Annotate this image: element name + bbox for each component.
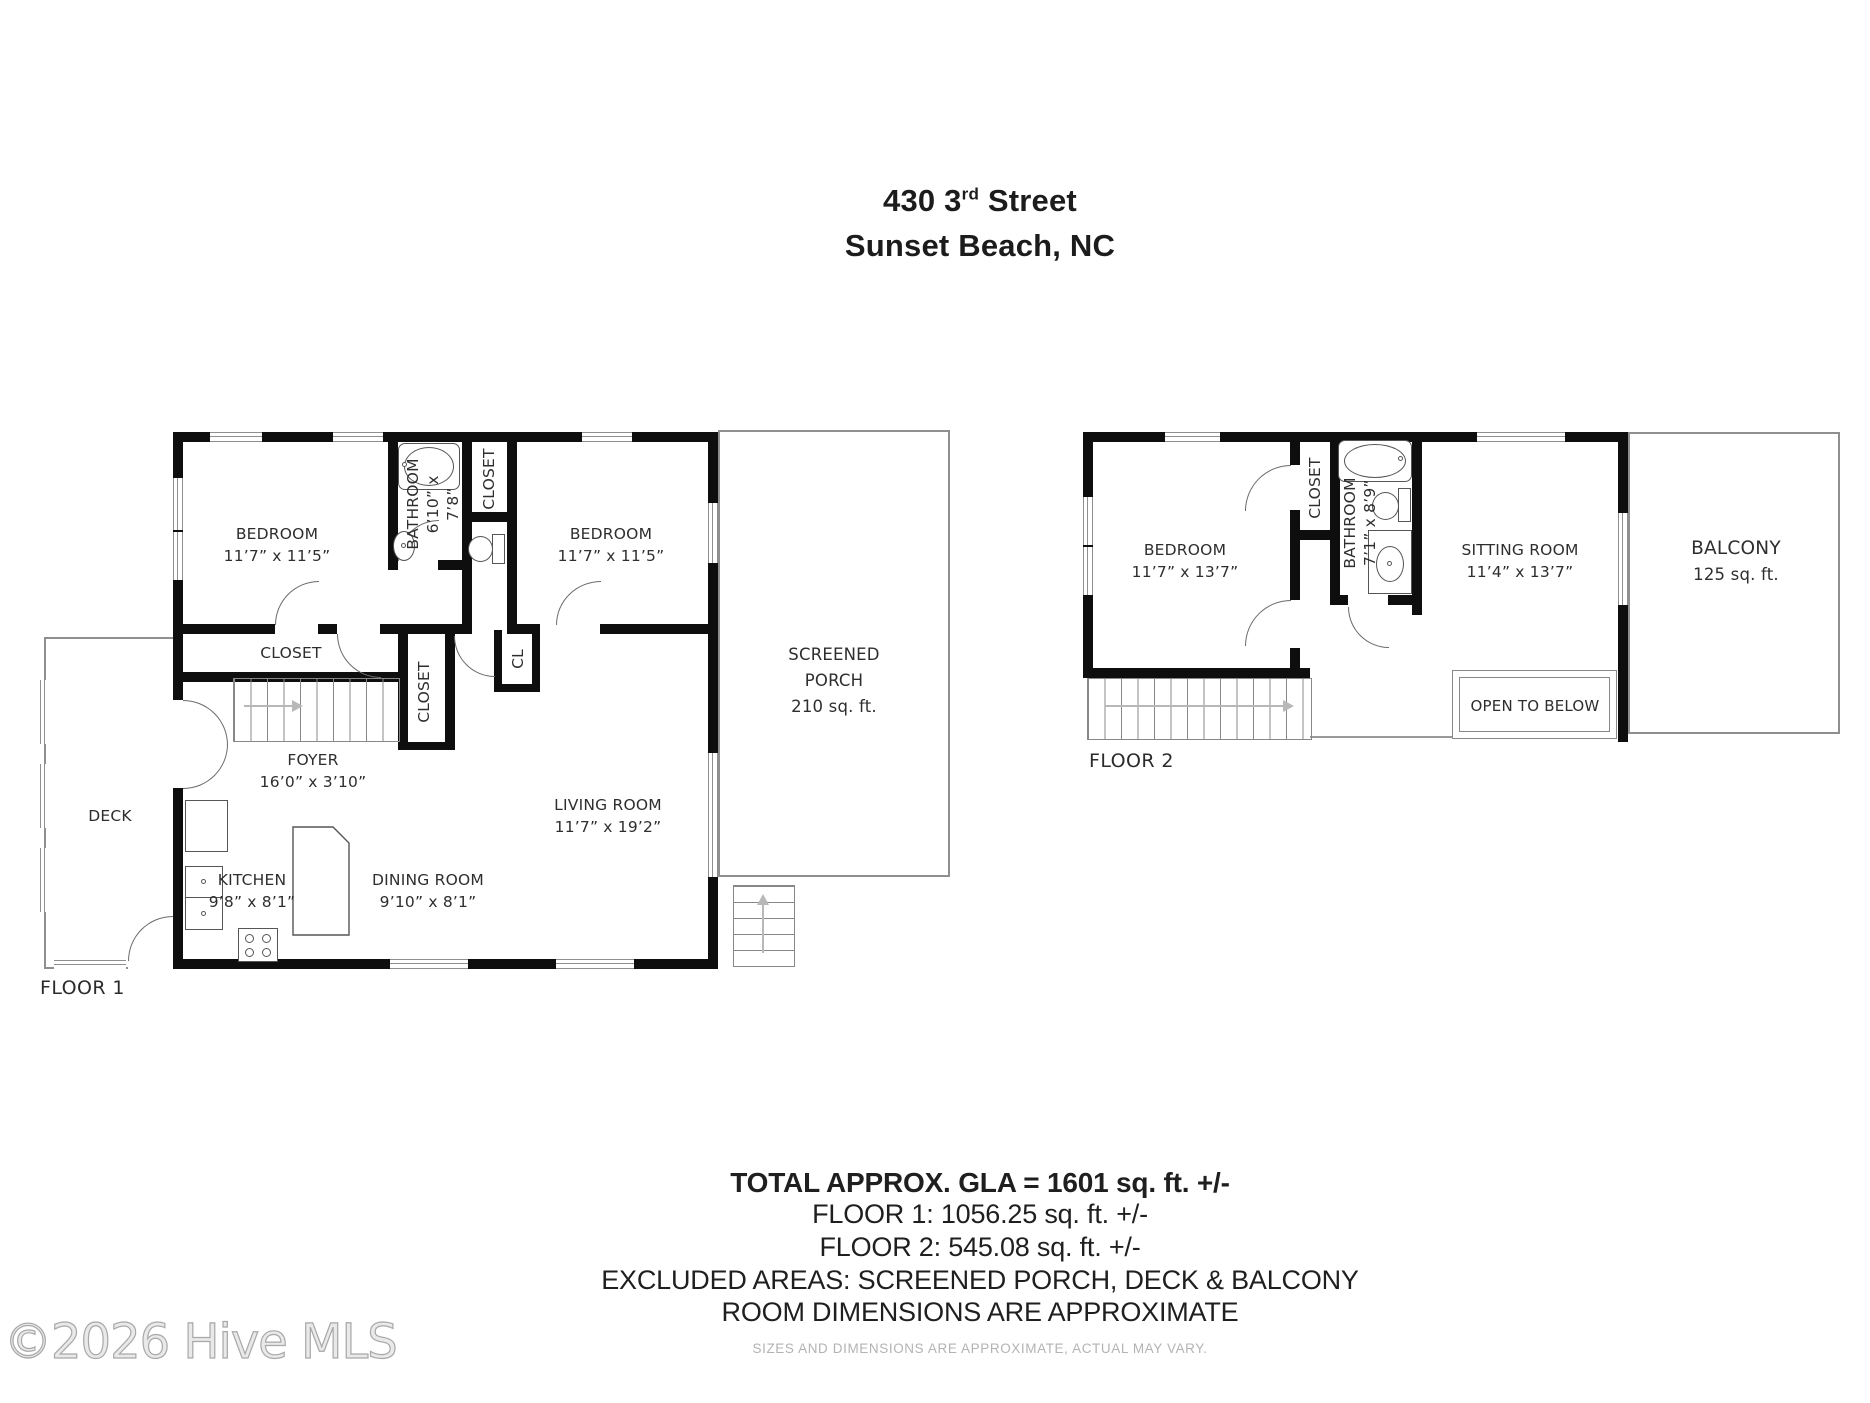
room-name: BEDROOM xyxy=(1132,539,1239,561)
room-name: SCREENED xyxy=(788,642,879,668)
room-dims: 11’7” x 11’5” xyxy=(224,545,331,567)
room-label-bathroom-f1: BATHROOM 6’10” x 7’8” xyxy=(404,458,462,549)
floor2-caption: FLOOR 2 xyxy=(1089,750,1174,772)
window xyxy=(390,959,468,969)
window xyxy=(210,432,262,442)
door-arc xyxy=(556,581,601,625)
room-label-living: LIVING ROOM 11’7” x 19’2” xyxy=(554,794,662,838)
stairs-up-arrow-icon xyxy=(757,894,769,905)
room-label-sitting: SITTING ROOM 11’4” x 13’7” xyxy=(1461,539,1578,583)
room-dims: 16’0” x 3’10” xyxy=(260,771,367,793)
room-name: BATHROOM xyxy=(1341,477,1359,568)
floorplan-page: 430 3rd Street Sunset Beach, NC xyxy=(0,0,1870,1403)
window xyxy=(40,848,49,912)
sink-dot xyxy=(201,879,206,884)
room-dims: 9’10” x 8’1” xyxy=(372,891,484,913)
wall xyxy=(494,684,540,692)
room-label-bedroom-left: BEDROOM 11’7” x 11’5” xyxy=(224,523,331,567)
room-name: FOYER xyxy=(260,749,367,771)
kitchen-peninsula xyxy=(292,826,350,936)
window xyxy=(173,532,183,580)
window xyxy=(54,960,126,969)
page-title: 430 3rd Street xyxy=(883,183,1077,219)
door-arc xyxy=(454,636,495,677)
stairs-arrow-line xyxy=(762,905,764,953)
stairs-arrow-line xyxy=(244,705,294,707)
room-label-closet-top: CLOSET xyxy=(480,448,498,509)
window xyxy=(556,959,634,969)
burner-dot xyxy=(245,948,254,957)
window xyxy=(1521,432,1565,442)
room-name: LIVING ROOM xyxy=(554,794,662,816)
slider-door xyxy=(708,753,718,877)
window xyxy=(708,503,718,563)
wall xyxy=(1330,530,1340,605)
room-label-closet-mid: CLOSET xyxy=(415,661,433,722)
summary-floor2-area: FLOOR 2: 545.08 sq. ft. +/- xyxy=(820,1232,1141,1263)
wall xyxy=(1083,668,1310,678)
window xyxy=(1618,513,1628,605)
stairs-arrow-line xyxy=(1105,705,1285,707)
room-dims: 11’4” x 13’7” xyxy=(1461,561,1578,583)
room-dims: 7’8” xyxy=(444,487,462,520)
bathtub-basin xyxy=(1344,444,1406,478)
wall xyxy=(1290,442,1300,465)
window xyxy=(40,764,49,828)
room-label-cl: CL xyxy=(509,649,527,669)
page-subtitle: Sunset Beach, NC xyxy=(845,228,1115,264)
room-name: CLOSET xyxy=(480,448,498,509)
mls-watermark: ©2026 Hive MLS xyxy=(4,1314,397,1370)
open-to-below-label: OPEN TO BELOW xyxy=(1471,695,1600,717)
toilet-tank xyxy=(492,534,505,564)
burner-dot xyxy=(262,934,271,943)
stove-symbol xyxy=(238,928,278,962)
window xyxy=(333,432,383,442)
room-label-balcony: BALCONY 125 sq. ft. xyxy=(1691,536,1781,588)
summary-excluded-areas: EXCLUDED AREAS: SCREENED PORCH, DECK & B… xyxy=(601,1265,1359,1296)
stairs-arrow-icon xyxy=(292,700,303,712)
room-name: CLOSET xyxy=(260,642,321,664)
title-ordinal: rd xyxy=(962,185,979,204)
wall xyxy=(494,630,502,692)
room-dims: 6’10” x xyxy=(424,475,442,533)
title-street: Street xyxy=(979,183,1077,218)
wall xyxy=(532,630,540,692)
wall xyxy=(1290,648,1300,678)
window xyxy=(1083,547,1093,595)
window xyxy=(582,432,632,442)
wall xyxy=(600,624,708,634)
room-label-bathroom-f2: BATHROOM 7’1” x 8’9” xyxy=(1341,477,1379,568)
summary-note: ROOM DIMENSIONS ARE APPROXIMATE xyxy=(722,1297,1239,1328)
room-dims: 11’7” x 19’2” xyxy=(554,816,662,838)
room-name: CLOSET xyxy=(1306,457,1324,518)
staircase xyxy=(1087,678,1312,740)
room-label-closet-f2: CLOSET xyxy=(1306,457,1324,518)
room-dims: 9’8” x 8’1” xyxy=(209,891,296,913)
refrigerator-symbol xyxy=(185,800,228,852)
sink-dot xyxy=(201,911,206,916)
title-address: 430 3 xyxy=(883,183,962,218)
summary-disclaimer: SIZES AND DIMENSIONS ARE APPROXIMATE, AC… xyxy=(752,1341,1207,1356)
room-dims: 210 sq. ft. xyxy=(788,694,879,720)
sink-drain-dot xyxy=(1387,561,1392,566)
door-arc xyxy=(183,700,228,745)
room-dims: 11’7” x 13’7” xyxy=(1132,561,1239,583)
window xyxy=(1165,432,1220,442)
door-arc xyxy=(1348,607,1389,648)
room-label-bedroom-f2: BEDROOM 11’7” x 13’7” xyxy=(1132,539,1239,583)
room-label-deck: DECK xyxy=(88,805,132,827)
wall xyxy=(1412,432,1422,615)
room-name: CLOSET xyxy=(415,661,433,722)
stairs-arrow-icon xyxy=(1283,700,1294,712)
room-label-dining: DINING ROOM 9’10” x 8’1” xyxy=(372,869,484,913)
wall xyxy=(318,624,337,634)
window xyxy=(173,478,183,530)
room-label-foyer: FOYER 16’0” x 3’10” xyxy=(260,749,367,793)
wall xyxy=(398,742,455,750)
room-name: DECK xyxy=(88,805,132,827)
wall xyxy=(472,512,507,522)
wall xyxy=(183,624,275,634)
summary-floor1-area: FLOOR 1: 1056.25 sq. ft. +/- xyxy=(812,1199,1148,1230)
room-label-kitchen: KITCHEN 9’8” x 8’1” xyxy=(209,869,296,913)
room-dims: 125 sq. ft. xyxy=(1691,562,1781,588)
room-name: BEDROOM xyxy=(224,523,331,545)
room-dims: 11’7” x 11’5” xyxy=(558,545,665,567)
room-name: KITCHEN xyxy=(209,869,296,891)
room-label-closet-long: CLOSET xyxy=(260,642,321,664)
room-name: DINING ROOM xyxy=(372,869,484,891)
room-dims: 7’1” x 8’9” xyxy=(1361,480,1379,567)
door-arc xyxy=(183,744,228,789)
room-name: BEDROOM xyxy=(558,523,665,545)
door-arc xyxy=(1245,465,1291,511)
room-name: BALCONY xyxy=(1691,536,1781,562)
summary-gla: TOTAL APPROX. GLA = 1601 sq. ft. +/- xyxy=(730,1167,1230,1199)
toilet-bowl xyxy=(468,536,493,562)
wall xyxy=(462,442,472,634)
toilet-tank xyxy=(1398,488,1411,522)
wall xyxy=(388,560,398,570)
wall xyxy=(1290,510,1300,600)
wall xyxy=(445,634,455,750)
window xyxy=(40,680,49,744)
faucet-dot xyxy=(1398,456,1403,461)
room-name: SITTING ROOM xyxy=(1461,539,1578,561)
burner-dot xyxy=(245,934,254,943)
room-label-porch: SCREENED PORCH 210 sq. ft. xyxy=(788,642,879,720)
landing-edge-line xyxy=(1310,736,1452,738)
door-arc xyxy=(275,581,319,625)
door-opening xyxy=(173,700,183,788)
room-name: BATHROOM xyxy=(404,458,422,549)
window xyxy=(1083,497,1093,545)
burner-dot xyxy=(262,948,271,957)
room-name: PORCH xyxy=(788,668,879,694)
window xyxy=(1477,432,1521,442)
wall xyxy=(507,442,517,634)
room-name: OPEN TO BELOW xyxy=(1471,695,1600,717)
room-name: CL xyxy=(509,649,527,669)
door-arc xyxy=(1245,600,1291,646)
room-label-bedroom-right: BEDROOM 11’7” x 11’5” xyxy=(558,523,665,567)
staircase xyxy=(233,678,400,742)
wall xyxy=(1330,595,1348,605)
wall xyxy=(380,624,472,634)
floor1-caption: FLOOR 1 xyxy=(40,977,125,999)
